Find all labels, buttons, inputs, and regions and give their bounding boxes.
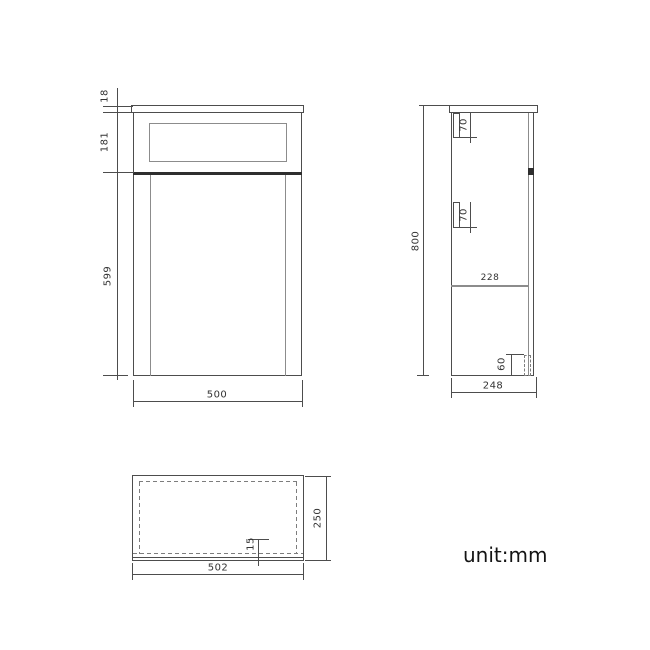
top-dim-front-edge: 15 bbox=[246, 537, 257, 551]
side-inner-depth-line bbox=[451, 285, 529, 287]
side-bracket-mid-tick bbox=[456, 227, 477, 228]
top-dim-depth: 250 bbox=[313, 508, 324, 529]
side-height-tick-bottom bbox=[417, 375, 429, 376]
top-depth-ext-bottom bbox=[305, 560, 331, 561]
front-drawer-door-separator bbox=[133, 172, 302, 175]
side-plinth-hidden bbox=[524, 355, 531, 376]
front-ext-line-bottom bbox=[103, 375, 128, 376]
side-dim-plinth: 60 bbox=[497, 357, 508, 371]
side-height-dim-line bbox=[423, 106, 424, 376]
side-bracket-top-tick bbox=[456, 137, 477, 138]
side-depth-dim-line bbox=[451, 392, 537, 393]
side-dim-bracket-top: 70 bbox=[459, 118, 470, 132]
side-dim-height: 800 bbox=[411, 231, 422, 252]
side-bracket-top-dim-line bbox=[470, 113, 471, 143]
top-hidden-body-right bbox=[296, 482, 297, 554]
front-door-stile-right bbox=[285, 175, 286, 376]
top-width-dim-line bbox=[132, 574, 304, 575]
front-door-stile-left bbox=[150, 175, 151, 376]
top-hidden-body-top bbox=[139, 481, 297, 482]
top-outline bbox=[132, 475, 304, 561]
top-hidden-body-front bbox=[133, 553, 303, 554]
front-dim-door-height: 599 bbox=[103, 266, 114, 287]
front-ext-line-board-bottom bbox=[103, 112, 133, 113]
top-dim-width: 502 bbox=[208, 563, 229, 574]
front-dim-drawer-height: 181 bbox=[100, 132, 111, 153]
top-width-ext-right bbox=[303, 563, 304, 580]
top-hidden-body-left bbox=[139, 482, 140, 554]
side-dim-depth: 248 bbox=[483, 381, 504, 392]
side-depth-ext-left bbox=[451, 378, 452, 398]
side-body-outline bbox=[451, 112, 534, 376]
side-dim-inner-depth: 228 bbox=[481, 273, 500, 283]
top-front-edge-line bbox=[133, 557, 303, 558]
side-drawer-door-gap bbox=[528, 168, 534, 175]
front-width-ext-right bbox=[302, 380, 303, 407]
top-depth-dim-line bbox=[326, 476, 327, 561]
side-front-face-line bbox=[528, 113, 529, 376]
front-width-ext-left bbox=[133, 380, 134, 407]
side-dim-bracket-mid: 70 bbox=[459, 208, 470, 222]
front-dim-width: 500 bbox=[207, 390, 228, 401]
front-dim-line-vertical bbox=[117, 88, 118, 380]
side-depth-ext-right bbox=[536, 377, 537, 398]
top-edge-dim-line bbox=[258, 539, 259, 566]
top-width-ext-left bbox=[132, 563, 133, 580]
front-drawer-panel bbox=[149, 123, 287, 162]
front-dim-top-thickness: 18 bbox=[100, 89, 111, 103]
side-plinth-dim-line bbox=[511, 355, 512, 376]
unit-note: unit:mm bbox=[463, 543, 547, 567]
front-ext-line-top bbox=[103, 106, 133, 107]
side-plinth-tick bbox=[506, 354, 524, 355]
side-bracket-mid-dim-line bbox=[470, 202, 471, 233]
side-height-ext-top bbox=[419, 105, 449, 106]
technical-drawing: 18 181 599 500 70 70 228 800 bbox=[0, 0, 650, 650]
front-ext-line-separator bbox=[103, 172, 134, 173]
top-depth-ext-top bbox=[305, 476, 331, 477]
front-width-dim-line bbox=[133, 401, 303, 402]
